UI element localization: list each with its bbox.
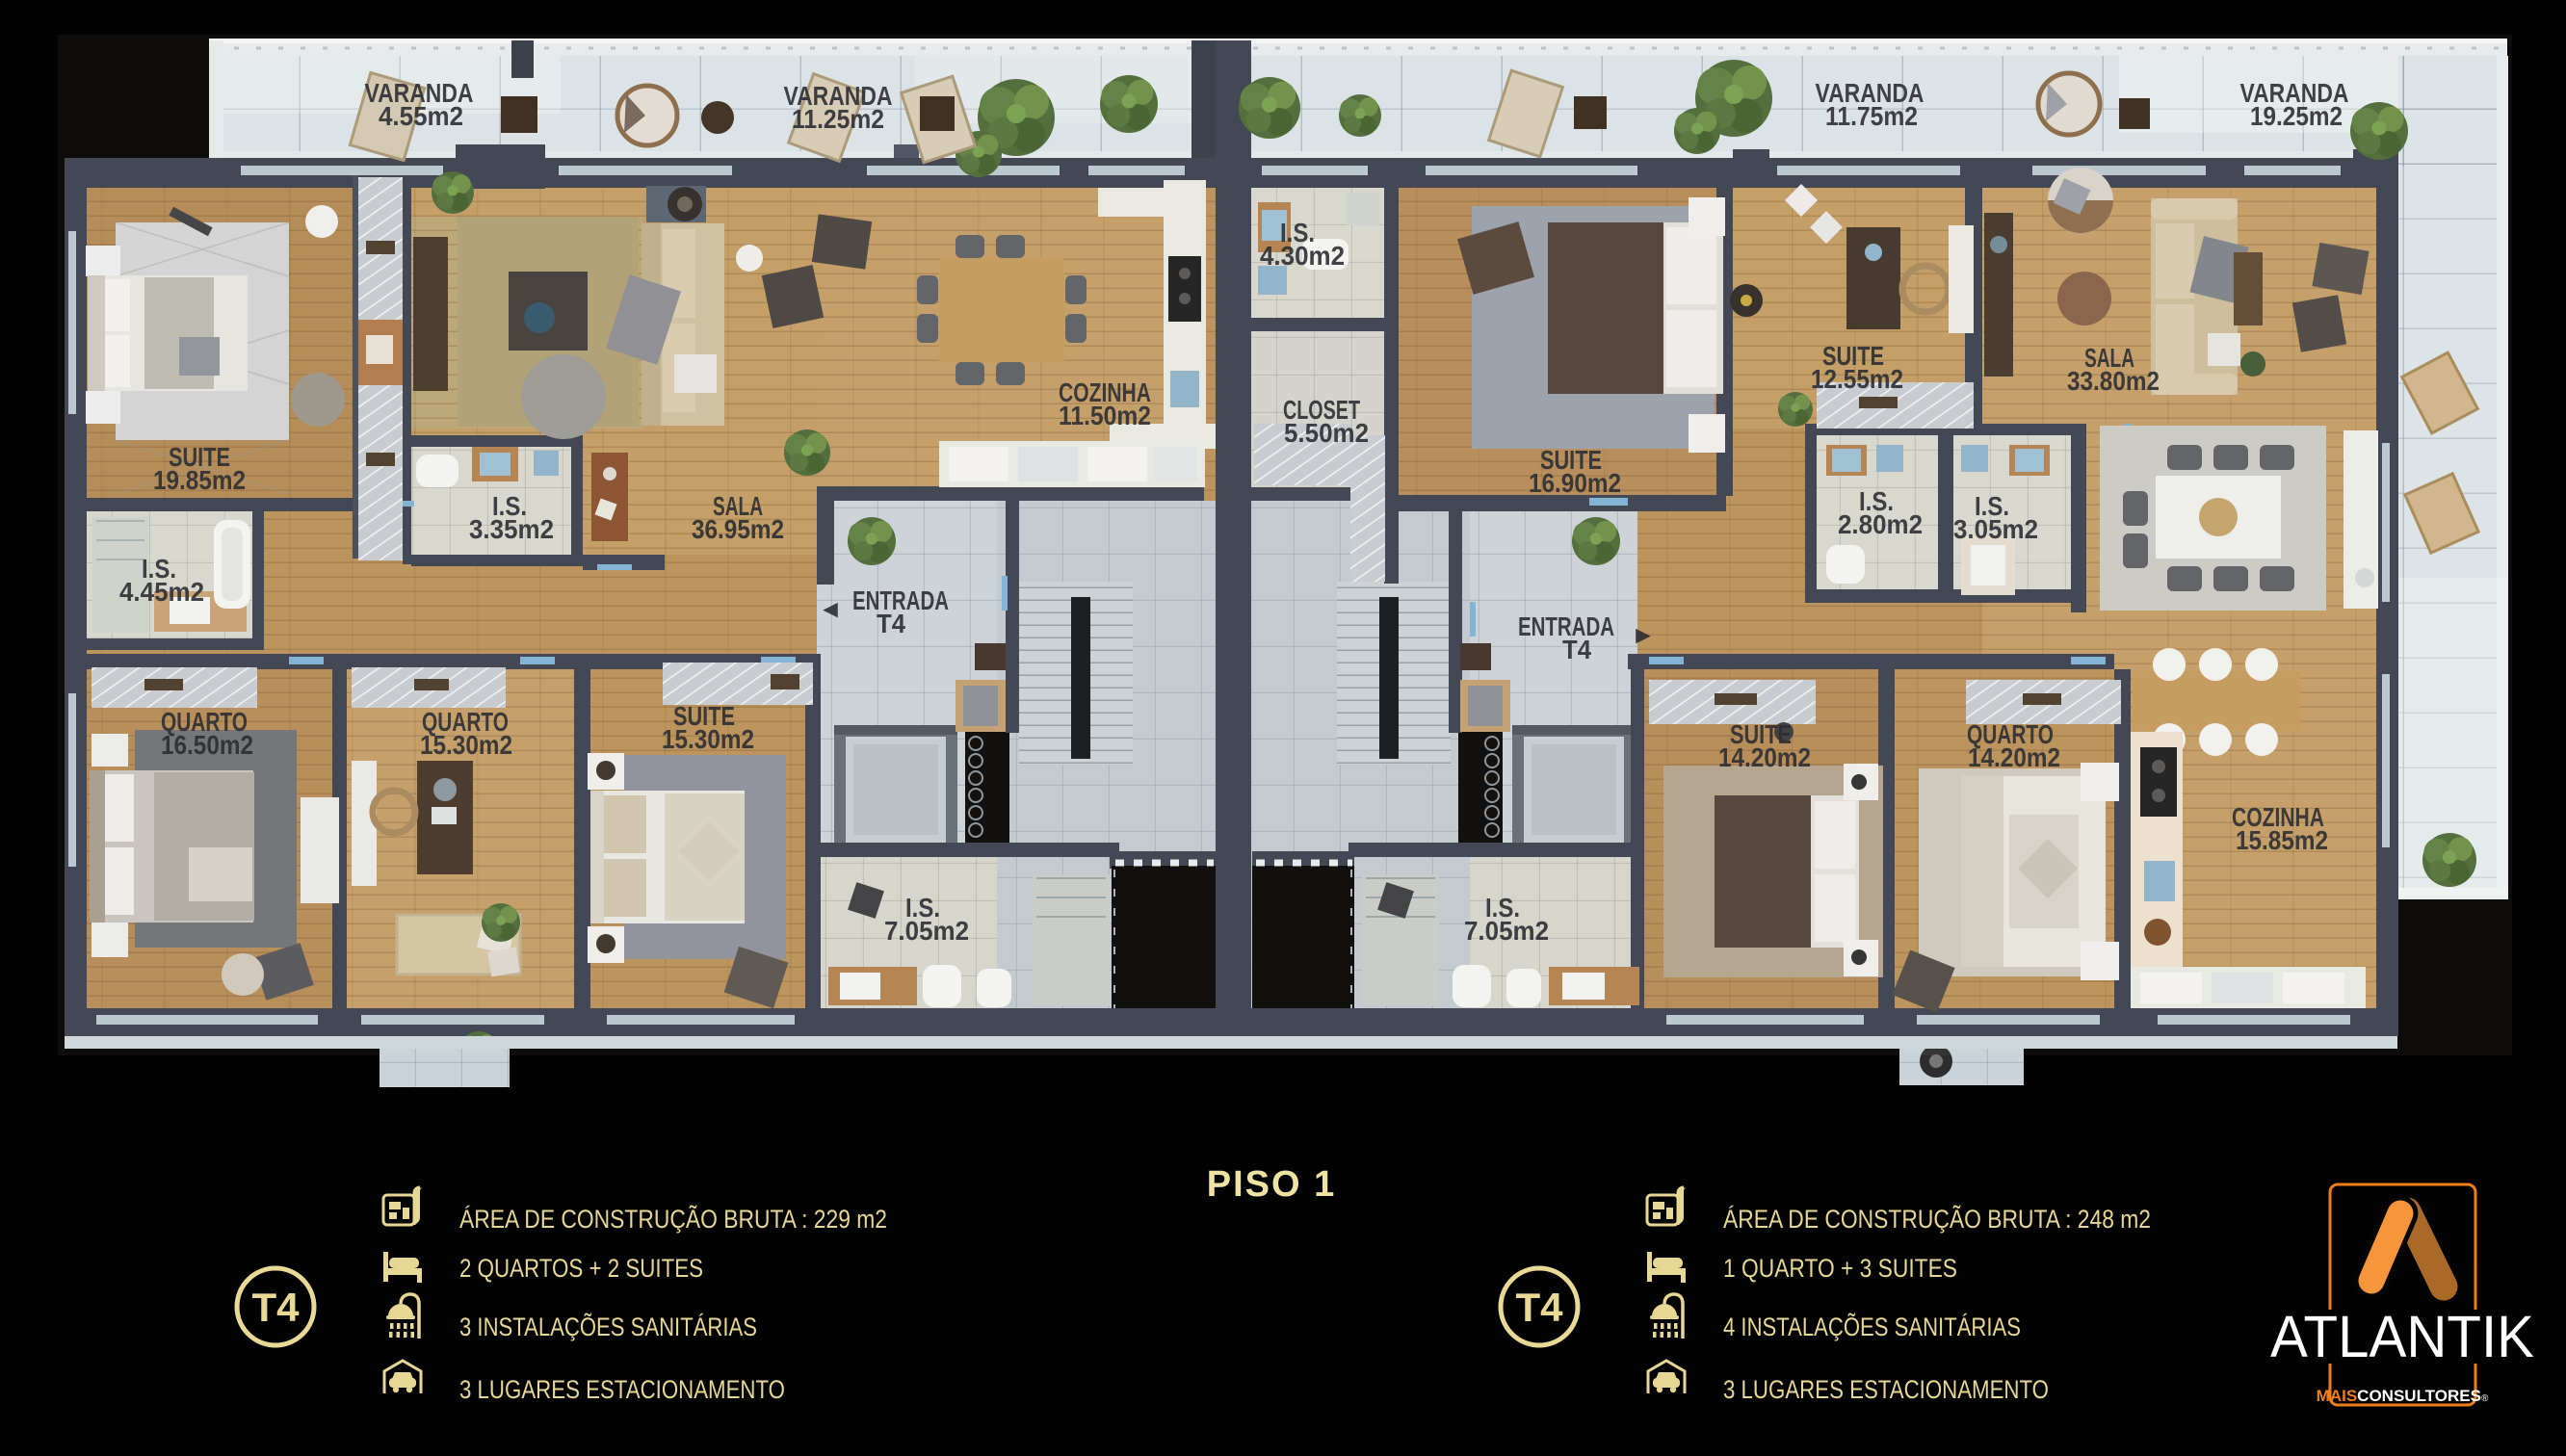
svg-text:MAISCONSULTORES®: MAISCONSULTORES® (2317, 1387, 2489, 1405)
svg-text:3 LUGARES ESTACIONAMENTO: 3 LUGARES ESTACIONAMENTO (459, 1375, 785, 1404)
svg-text:2.80m2: 2.80m2 (1838, 509, 1923, 539)
svg-text:11.50m2: 11.50m2 (1059, 401, 1151, 430)
svg-text:11.25m2: 11.25m2 (792, 104, 884, 134)
svg-text:7.05m2: 7.05m2 (884, 916, 969, 946)
svg-text:1 QUARTO + 3 SUITES: 1 QUARTO + 3 SUITES (1723, 1254, 1957, 1283)
svg-text:ÁREA DE CONSTRUÇÃO BRUTA : 24: ÁREA DE CONSTRUÇÃO BRUTA : 248 m2 (1723, 1204, 2151, 1234)
svg-text:5.50m2: 5.50m2 (1284, 418, 1369, 448)
svg-text:T4: T4 (1562, 635, 1591, 664)
svg-text:16.90m2: 16.90m2 (1529, 468, 1621, 498)
svg-text:19.85m2: 19.85m2 (153, 465, 246, 495)
svg-text:T4: T4 (251, 1285, 300, 1330)
svg-text:ÁREA DE CONSTRUÇÃO BRUTA : 22: ÁREA DE CONSTRUÇÃO BRUTA : 229 m2 (459, 1204, 887, 1234)
svg-text:15.30m2: 15.30m2 (662, 724, 754, 754)
svg-text:4.55m2: 4.55m2 (379, 101, 463, 131)
svg-text:ATLANTIK: ATLANTIK (2270, 1304, 2534, 1369)
svg-text:15.85m2: 15.85m2 (2236, 825, 2328, 855)
svg-text:2 QUARTOS + 2 SUITES: 2 QUARTOS + 2 SUITES (459, 1254, 703, 1283)
svg-text:3 LUGARES ESTACIONAMENTO: 3 LUGARES ESTACIONAMENTO (1723, 1375, 2049, 1404)
svg-text:15.30m2: 15.30m2 (420, 730, 512, 760)
svg-text:14.20m2: 14.20m2 (1718, 742, 1811, 772)
svg-text:3.35m2: 3.35m2 (469, 514, 554, 544)
svg-text:19.25m2: 19.25m2 (2250, 101, 2343, 131)
svg-text:4 INSTALAÇÕES SANITÁRIAS: 4 INSTALAÇÕES SANITÁRIAS (1723, 1312, 2021, 1341)
svg-text:7.05m2: 7.05m2 (1464, 916, 1549, 946)
svg-text:14.20m2: 14.20m2 (1968, 742, 2060, 772)
svg-text:16.50m2: 16.50m2 (161, 730, 253, 760)
svg-text:33.80m2: 33.80m2 (2067, 366, 2160, 396)
svg-text:11.75m2: 11.75m2 (1825, 101, 1918, 131)
svg-text:T4: T4 (1515, 1285, 1563, 1330)
svg-text:►: ► (1631, 620, 1656, 649)
svg-text:12.55m2: 12.55m2 (1811, 364, 1903, 394)
svg-text:4.45m2: 4.45m2 (119, 577, 204, 607)
svg-text:4.30m2: 4.30m2 (1260, 241, 1345, 271)
svg-text:◄: ◄ (818, 594, 843, 623)
svg-text:36.95m2: 36.95m2 (692, 514, 784, 544)
svg-text:3.05m2: 3.05m2 (1953, 514, 2038, 544)
svg-text:PISO 1: PISO 1 (1207, 1164, 1337, 1205)
svg-text:3 INSTALAÇÕES SANITÁRIAS: 3 INSTALAÇÕES SANITÁRIAS (459, 1312, 757, 1341)
svg-text:T4: T4 (877, 609, 905, 638)
